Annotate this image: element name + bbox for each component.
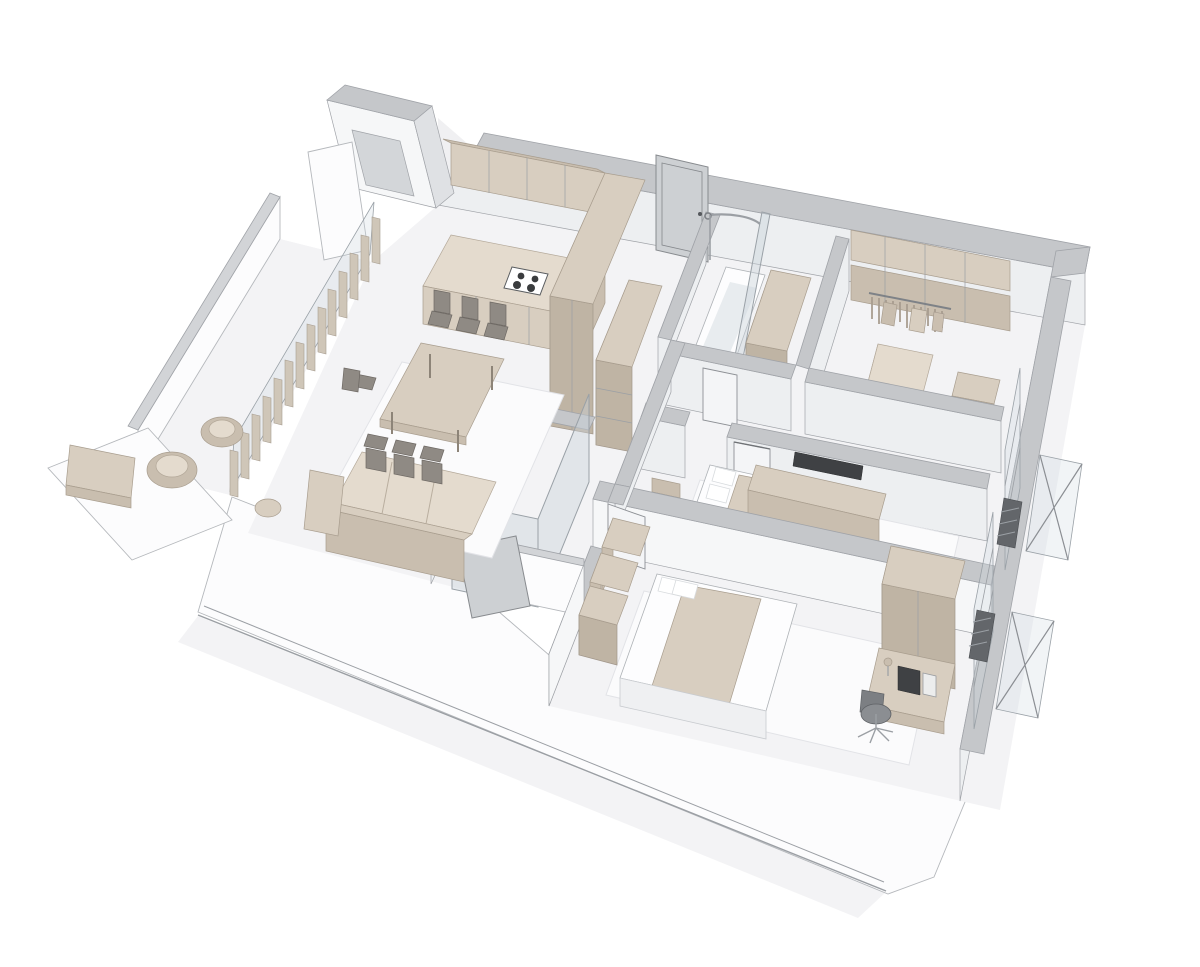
entrance-door-handle	[698, 212, 702, 216]
bathroom-door	[703, 368, 737, 427]
side-table	[255, 499, 281, 517]
chair-back	[342, 368, 360, 392]
chair-back	[490, 302, 506, 326]
chair-back	[394, 454, 414, 478]
floor-plan-canvas	[0, 0, 1200, 967]
garment	[909, 308, 927, 333]
burner	[532, 276, 539, 283]
chair-back	[366, 448, 386, 472]
desk-lamp	[884, 658, 892, 666]
chair-back	[462, 296, 478, 320]
garment	[932, 312, 944, 332]
burner	[518, 273, 525, 280]
round-chair-1-cushion	[156, 455, 188, 477]
shelving-front	[596, 360, 632, 452]
corner-cap	[1051, 247, 1090, 277]
sofa-armrest	[304, 470, 344, 536]
chair-back	[422, 460, 442, 484]
burner	[513, 281, 521, 289]
apartment-3d-render	[0, 0, 1200, 967]
monitor	[898, 666, 920, 695]
round-chair-2-cushion	[209, 420, 235, 438]
garment	[881, 302, 897, 326]
burner	[527, 284, 535, 292]
monitor-second	[923, 673, 936, 697]
chair-back	[434, 290, 450, 314]
